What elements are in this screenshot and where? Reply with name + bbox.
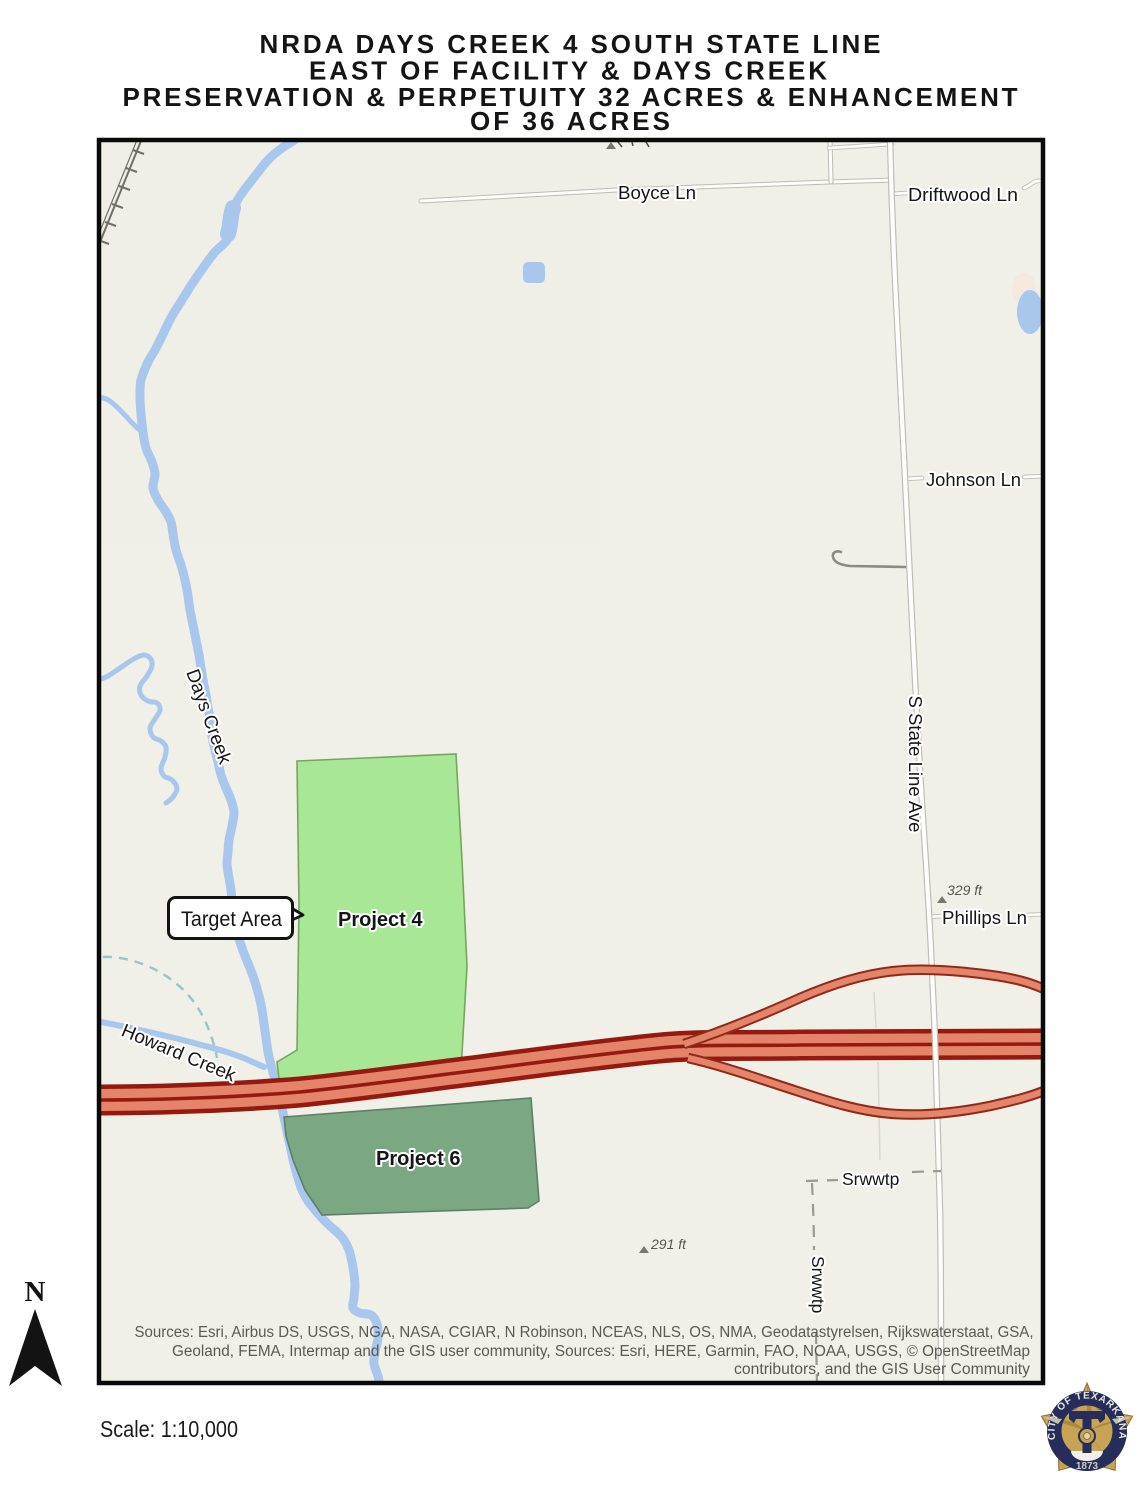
svg-text:Project 6: Project 6 xyxy=(376,1148,460,1170)
svg-text:Driftwood Ln: Driftwood Ln xyxy=(908,185,1018,205)
svg-text:Target Area: Target Area xyxy=(181,908,282,931)
svg-text:Johnson Ln: Johnson Ln xyxy=(926,470,1021,490)
svg-text:291 ft: 291 ft xyxy=(650,1236,687,1252)
svg-text:1873: 1873 xyxy=(1076,1461,1099,1472)
svg-text:S State Line Ave: S State Line Ave xyxy=(905,696,925,833)
svg-text:Phillips Ln: Phillips Ln xyxy=(942,908,1027,928)
svg-text:Srwwtp: Srwwtp xyxy=(842,1169,899,1189)
svg-text:Project 4: Project 4 xyxy=(338,909,423,931)
svg-text:Sources: Esri, Airbus DS, USGS: Sources: Esri, Airbus DS, USGS, NGA, NAS… xyxy=(135,1324,1034,1341)
svg-text:329 ft: 329 ft xyxy=(947,882,983,898)
svg-text:OF 36 ACRES: OF 36 ACRES xyxy=(470,106,670,136)
svg-text:Srwwtp: Srwwtp xyxy=(808,1256,828,1313)
svg-text:contributors, and the GIS User: contributors, and the GIS User Community xyxy=(734,1361,1030,1378)
svg-text:Geoland, FEMA, Intermap and th: Geoland, FEMA, Intermap and the GIS user… xyxy=(172,1343,1030,1360)
svg-text:Boyce Ln: Boyce Ln xyxy=(618,183,696,203)
svg-text:Scale: 1:10,000: Scale: 1:10,000 xyxy=(100,1416,238,1442)
svg-text:N: N xyxy=(25,1276,46,1308)
